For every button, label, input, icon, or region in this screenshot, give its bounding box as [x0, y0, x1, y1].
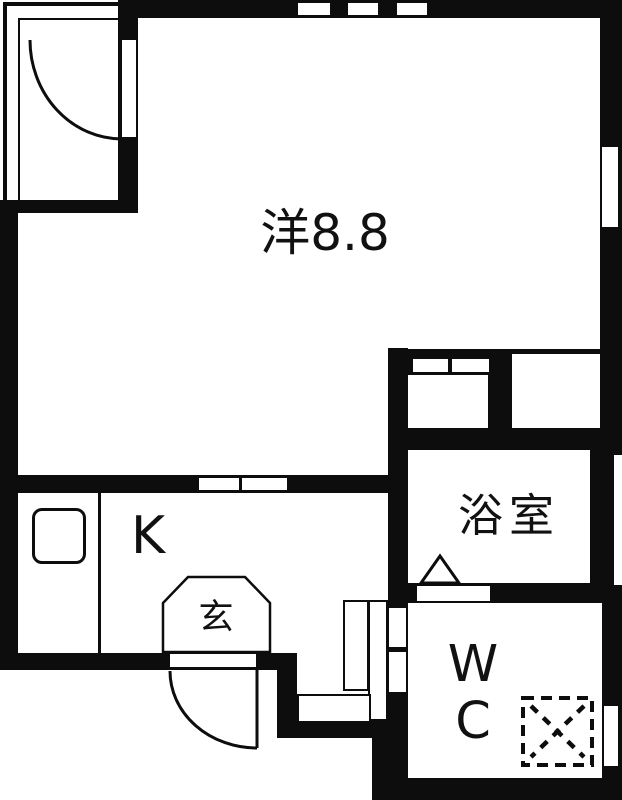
closet-door-leaf	[120, 38, 138, 139]
wall-closet-left-line	[3, 2, 7, 213]
bathroom-door-triangle	[421, 556, 459, 583]
wall-utility-band	[388, 428, 622, 450]
room-label-entrance: 玄	[192, 598, 240, 638]
wall-storage-divider	[488, 354, 512, 430]
room-label-living: 洋8.8	[225, 206, 425, 260]
room-label-kitchen: K	[118, 508, 178, 564]
entry-door-arc	[170, 671, 257, 748]
washer-space-dashed-box	[523, 698, 592, 765]
wall-wc-bottom	[388, 778, 622, 800]
right-window-pane	[602, 147, 618, 227]
wall-wc-right	[602, 585, 622, 800]
shoe-cabinet-low	[297, 694, 371, 723]
room-label-toilet: W C	[438, 636, 508, 750]
wall-closet-bottom	[8, 200, 138, 213]
room-label-toilet-line1: W	[438, 636, 508, 693]
top-window-pane-3	[397, 3, 427, 15]
room-label-toilet-line2: C	[438, 693, 508, 750]
entry-door-leaf	[168, 652, 258, 669]
kitchen-sliding-door-panel-2	[240, 476, 289, 492]
room-label-bathroom: 浴室	[428, 491, 584, 541]
top-window-pane-2	[348, 3, 378, 15]
storage-sliding-door-panel-2	[450, 357, 491, 374]
storage-sliding-door-panel-1	[411, 357, 450, 374]
wall-bathroom-right	[590, 430, 614, 603]
shoe-cabinet-tall-2	[368, 600, 388, 721]
wall-entry-step-lower	[372, 722, 408, 800]
wc-door-panel-1	[389, 608, 406, 647]
floor-plan: 洋8.8 K 玄 浴室 W C	[0, 0, 622, 800]
kitchen-sink	[32, 508, 86, 564]
wall-right	[600, 0, 622, 455]
shoe-cabinet-tall-1	[343, 600, 369, 691]
kitchen-counter-line	[98, 493, 101, 653]
wc-window-pane	[604, 706, 618, 766]
closet-inner-outline	[18, 18, 118, 200]
wall-left	[0, 200, 18, 670]
wc-door-panel-2	[389, 652, 406, 692]
wall-closet-top-line	[3, 2, 118, 6]
kitchen-sliding-door-panel-1	[197, 476, 241, 492]
washer-space-x-mark	[531, 706, 584, 757]
bathroom-door-slot	[417, 586, 490, 601]
top-window-pane-1	[298, 3, 330, 15]
